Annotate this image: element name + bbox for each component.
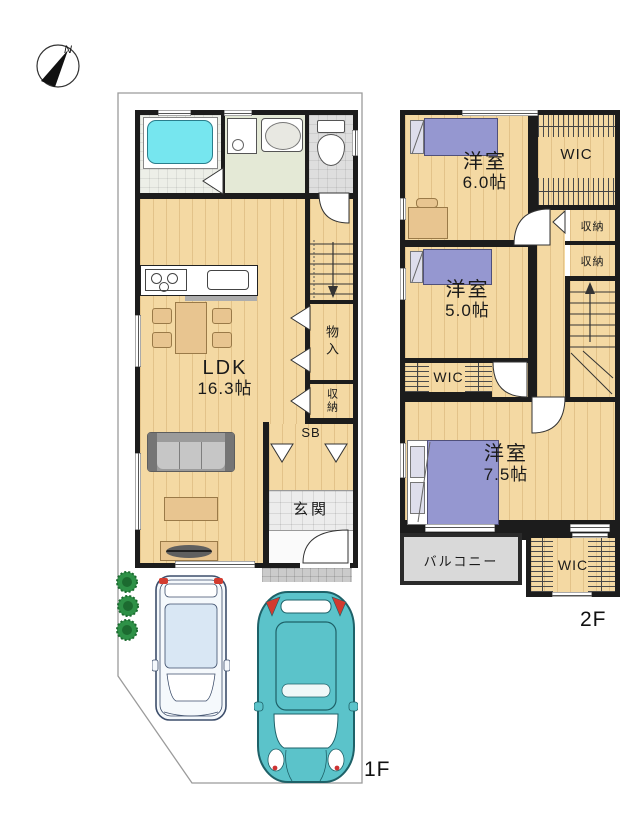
window — [224, 110, 252, 116]
tv-board — [160, 541, 218, 561]
bedroom-60-size: 6.0帖 — [435, 174, 535, 192]
entrance-porch — [262, 568, 352, 582]
bed-pillow — [410, 120, 424, 154]
ldk-label: LDK 16.3帖 — [160, 358, 290, 398]
floor1-label: 1F — [364, 758, 391, 782]
window — [570, 524, 610, 532]
toilet-room — [309, 115, 353, 193]
window — [352, 130, 358, 156]
ldk-size: 16.3帖 — [160, 380, 290, 398]
washing-machine — [227, 118, 257, 154]
shunou-label-1f: 収納 — [310, 384, 353, 418]
window — [462, 110, 538, 116]
bedroom-50-name: 洋室 — [415, 280, 520, 302]
bed-pillow — [410, 251, 423, 283]
dining-chair — [152, 308, 172, 324]
sofa — [147, 432, 235, 472]
window — [135, 315, 141, 367]
car-teal-icon — [254, 588, 358, 786]
bedroom-60-name: 洋室 — [435, 152, 535, 174]
stairs-down — [310, 238, 353, 300]
window — [400, 268, 406, 300]
sofa-armrest — [148, 433, 157, 471]
floor-plan-canvas: N — [0, 0, 640, 820]
wic-bottom-label: WIC — [531, 557, 615, 573]
kitchen-counter — [140, 265, 258, 296]
bedroom-75-size: 7.5帖 — [455, 466, 557, 484]
sofa-cushions — [157, 442, 225, 469]
monoire-label: 物入 — [310, 310, 353, 374]
bed-pillow — [410, 482, 425, 514]
floor2-label: 2F — [580, 608, 607, 632]
bathtub — [147, 120, 213, 164]
stairs-up — [570, 281, 615, 397]
floor1-plan: LDK 16.3帖 物入 収納 SB 玄関 — [135, 110, 358, 568]
car-van-icon — [152, 572, 230, 724]
coffee-table — [164, 497, 218, 521]
vanity — [261, 118, 303, 152]
hall-door-zone — [492, 363, 528, 397]
dining-chair — [212, 332, 232, 348]
balcony: バルコニー — [400, 533, 522, 585]
window — [400, 443, 406, 478]
bed-pillow — [410, 446, 425, 478]
burner — [159, 282, 169, 292]
dining-table — [175, 302, 207, 354]
dining-chair — [212, 308, 232, 324]
hanger-rod — [538, 191, 615, 192]
counter-edge — [185, 296, 257, 301]
plants-icon — [112, 568, 144, 648]
compass-icon: N — [34, 40, 86, 92]
compass-north-label: N — [64, 44, 72, 56]
hanger-rod — [538, 126, 615, 127]
stair-wall — [565, 360, 570, 397]
bedroom-50-size: 5.0帖 — [415, 302, 520, 320]
hall-2f — [537, 210, 565, 397]
toilet-tank — [317, 120, 345, 133]
wic-top-label: WIC — [538, 146, 615, 163]
bedroom-50-label: 洋室 5.0帖 — [415, 280, 520, 320]
window — [552, 592, 592, 597]
closet-b-label: 収納 — [570, 253, 615, 269]
kitchen-sink — [207, 270, 249, 290]
closet-a-label: 収納 — [570, 218, 615, 234]
window — [425, 524, 495, 532]
floor2-plan: 洋室 6.0帖 WIC 収納 収納 洋室 5.0帖 WIC 洋室 7.5帖 — [400, 110, 620, 540]
entrance-hall — [269, 444, 353, 490]
burner — [167, 273, 178, 284]
window — [175, 561, 255, 568]
window — [158, 110, 191, 116]
genkan-label: 玄関 — [269, 498, 353, 519]
washroom — [225, 115, 305, 193]
wic-mid-label: WIC — [405, 369, 492, 385]
washbasin — [265, 122, 301, 150]
wic-bottom-block: WIC — [526, 533, 620, 597]
dining-chair — [152, 332, 172, 348]
ldk-name: LDK — [160, 358, 290, 380]
entrance-door-zone — [269, 530, 353, 563]
bedroom-75-name: 洋室 — [455, 444, 557, 466]
bedroom-75-label: 洋室 7.5帖 — [455, 444, 557, 484]
sofa-armrest — [225, 433, 234, 471]
desk — [408, 207, 448, 239]
tv — [166, 545, 212, 558]
balcony-label: バルコニー — [404, 551, 518, 570]
bedroom-60-label: 洋室 6.0帖 — [435, 152, 535, 192]
stove — [145, 269, 187, 291]
bathroom — [140, 115, 221, 193]
window — [572, 533, 608, 538]
window — [135, 453, 141, 530]
stair-landing — [310, 199, 353, 238]
window — [400, 198, 406, 220]
washing-machine-drum — [232, 139, 244, 151]
toilet-bowl — [317, 134, 345, 166]
shoe-box-label: SB — [269, 425, 353, 440]
